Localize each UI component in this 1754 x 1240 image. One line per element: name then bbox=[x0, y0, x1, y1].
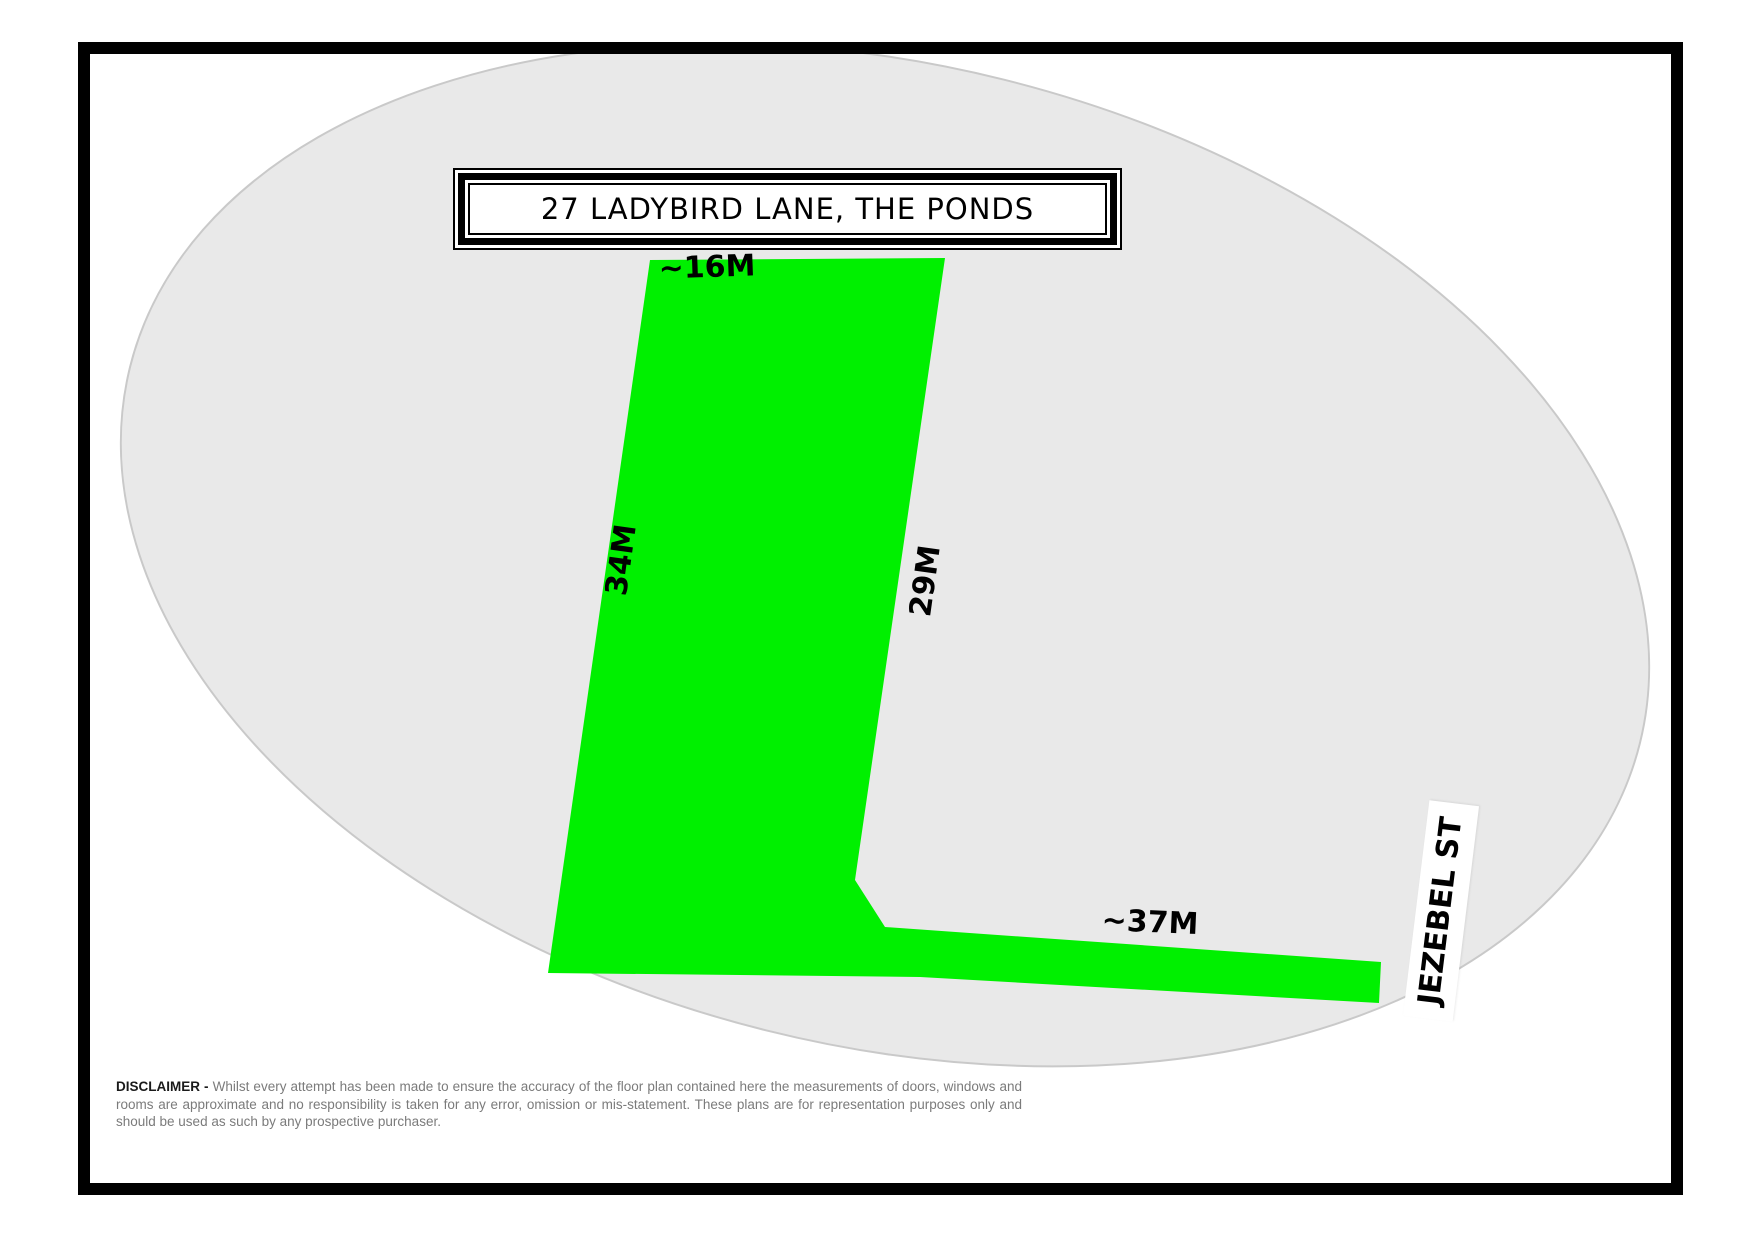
disclaimer-heading: DISCLAIMER - bbox=[116, 1079, 209, 1094]
title-box-middle-border: 27 LADYBIRD LANE, THE PONDS bbox=[458, 173, 1117, 245]
page-title: 27 LADYBIRD LANE, THE PONDS bbox=[541, 192, 1034, 226]
disclaimer-box: DISCLAIMER - Whilst every attempt has be… bbox=[112, 1072, 1030, 1141]
site-plan-page: 27 LADYBIRD LANE, THE PONDS ~16M 34M 29M… bbox=[0, 0, 1754, 1240]
title-box-inner-border: 27 LADYBIRD LANE, THE PONDS bbox=[468, 183, 1107, 235]
measurement-bottom: ~37M bbox=[1101, 906, 1199, 940]
title-box: 27 LADYBIRD LANE, THE PONDS bbox=[453, 168, 1122, 250]
disclaimer-text: Whilst every attempt has been made to en… bbox=[116, 1079, 1022, 1129]
measurement-top: ~16M bbox=[658, 251, 756, 284]
